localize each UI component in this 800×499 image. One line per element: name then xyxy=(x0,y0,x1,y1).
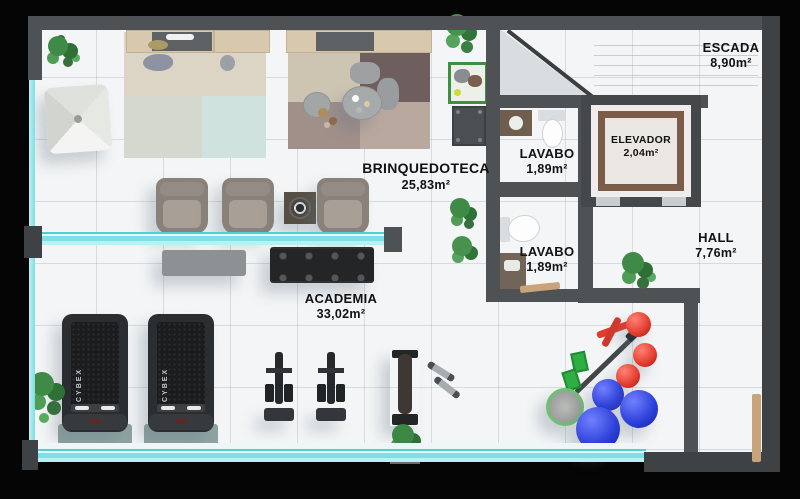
armchair-cushion xyxy=(229,200,267,228)
elevator-door-track xyxy=(596,197,620,206)
toy-box xyxy=(448,62,488,104)
cabinet-knob xyxy=(456,110,460,114)
storage-cabinet xyxy=(452,106,486,146)
plant xyxy=(452,236,472,256)
room-label-hall: HALL 7,76m² xyxy=(656,230,776,262)
exercise-machine xyxy=(262,350,296,428)
exercise-ball-red xyxy=(633,343,657,367)
wall-stub-bottom-left xyxy=(22,440,38,470)
wall-corridor-left xyxy=(684,303,698,463)
exercise-ball-red xyxy=(626,312,651,337)
room-label-lavabo-superior: LAVABO 1,89m² xyxy=(502,146,592,178)
weight-bench xyxy=(390,350,420,426)
machine-base xyxy=(264,408,294,421)
machine-crossbar xyxy=(318,368,344,373)
dumbbell-rack xyxy=(270,247,374,283)
kids-chair xyxy=(350,62,380,84)
elevator-door-track xyxy=(662,197,686,206)
armchair xyxy=(156,178,208,234)
room-label-brinquedoteca: BRINQUEDOTECA 25,83m² xyxy=(338,160,514,193)
wall-hall-bottom xyxy=(578,288,700,303)
rug-section xyxy=(202,96,266,158)
table-item xyxy=(356,107,362,113)
table-item xyxy=(364,101,370,107)
rug-section xyxy=(124,96,202,158)
bathroom-counter xyxy=(500,110,532,136)
room-label-lavabo-inferior: LAVABO 1,89m² xyxy=(502,244,592,276)
table-item xyxy=(352,95,359,102)
room-label-academia: ACADEMIA 33,02m² xyxy=(282,291,400,323)
wall-center-vertical xyxy=(486,16,500,302)
round-table xyxy=(342,86,382,120)
treadmill: CYBEX xyxy=(148,314,214,432)
side-table-lamp xyxy=(284,192,316,224)
exercise-ball-blue xyxy=(620,390,658,428)
toilet xyxy=(500,214,542,244)
machine-column xyxy=(275,352,283,404)
floor-plan: CYBEX CYBEX xyxy=(0,0,800,499)
glass-facade xyxy=(36,449,646,462)
machine-pedal xyxy=(317,384,326,402)
armchair-back xyxy=(226,182,270,196)
toy-ball xyxy=(220,55,235,71)
toilet-bowl xyxy=(506,213,541,244)
armchair-back xyxy=(160,182,204,196)
room-label-elevador: ELEVADOR 2,04m² xyxy=(605,134,677,160)
armchair xyxy=(222,178,274,234)
glass-wall-left xyxy=(29,258,35,446)
machine-pedal xyxy=(284,384,293,402)
gym-bench xyxy=(162,250,246,276)
armchair-cushion xyxy=(324,200,362,228)
toy-shelf xyxy=(214,30,270,53)
wall-top xyxy=(30,16,770,30)
treadmill-brand-label: CYBEX xyxy=(76,340,83,402)
exercise-machine xyxy=(314,350,348,428)
treadmill-deck xyxy=(157,404,205,412)
toilet xyxy=(538,110,566,150)
elevator-frame: ELEVADOR 2,04m² xyxy=(598,111,684,191)
toy-item xyxy=(166,34,194,40)
machine-pedal xyxy=(265,384,274,402)
bench-pad xyxy=(398,354,412,414)
door-post xyxy=(24,226,42,258)
glass-partition xyxy=(36,232,386,245)
machine-base xyxy=(316,408,346,421)
toy-ball-yellow xyxy=(454,89,461,96)
plant xyxy=(622,252,644,274)
toy-cluster xyxy=(318,108,328,118)
plush-bear xyxy=(468,75,482,87)
treadmill-console xyxy=(63,414,127,430)
plant xyxy=(48,36,68,56)
toy-item xyxy=(148,40,168,50)
toilet-bowl xyxy=(542,119,563,148)
door-leaf xyxy=(752,394,761,462)
play-tent xyxy=(44,84,112,154)
machine-column xyxy=(327,352,335,404)
room-label-escada: ESCADA 8,90m² xyxy=(672,40,790,72)
glass-wall-left xyxy=(29,80,35,226)
plush-toy xyxy=(143,54,173,71)
armchair-cushion xyxy=(163,200,201,228)
partition-post xyxy=(384,227,402,252)
treadmill: CYBEX xyxy=(62,314,128,432)
wall-left-upper xyxy=(28,16,42,80)
sink-basin xyxy=(509,116,523,130)
plant xyxy=(450,198,470,218)
treadmill-console xyxy=(149,414,213,430)
machine-pedal xyxy=(336,384,345,402)
shelf-cushion xyxy=(316,32,374,51)
tent-knot xyxy=(74,115,83,124)
treadmill-brand-label: CYBEX xyxy=(162,340,169,402)
machine-crossbar xyxy=(266,368,292,373)
treadmill-deck xyxy=(71,404,119,412)
